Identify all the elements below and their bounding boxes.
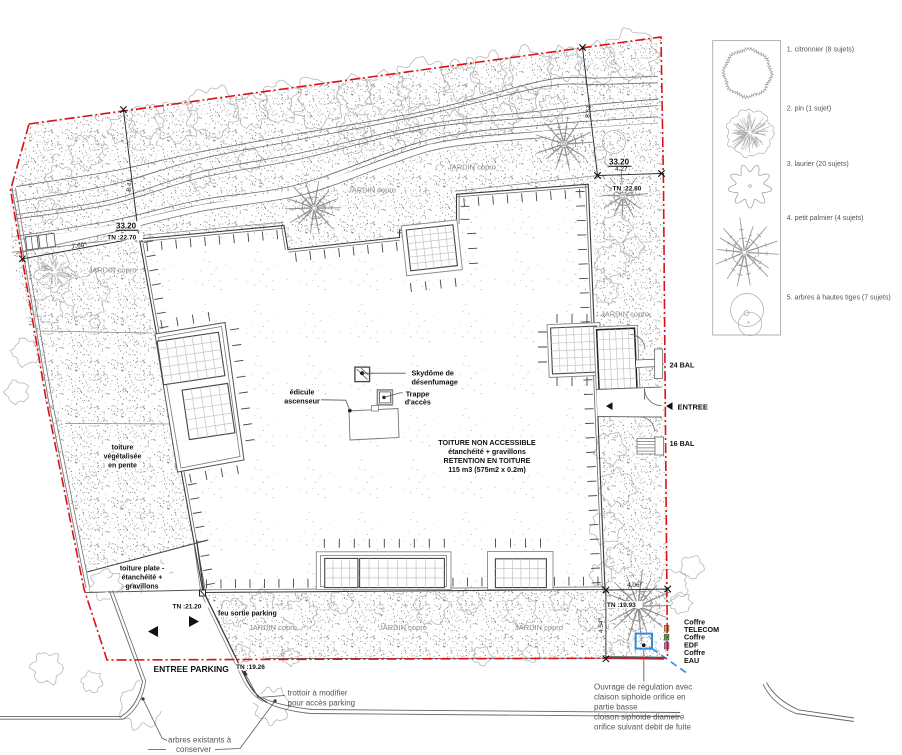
svg-text:JARDIN copro: JARDIN copro bbox=[601, 310, 649, 319]
svg-text:1. citronnier (8 sujets): 1. citronnier (8 sujets) bbox=[787, 47, 854, 54]
svg-text:désenfumage: désenfumage bbox=[412, 377, 458, 386]
svg-text:JARDIN copro: JARDIN copro bbox=[249, 623, 297, 632]
svg-text:en pente: en pente bbox=[108, 463, 137, 470]
svg-text:ENTREE PARKING: ENTREE PARKING bbox=[154, 664, 230, 674]
svg-text:TN :19.26: TN :19.26 bbox=[236, 664, 265, 671]
svg-text:RETENTION EN TOITURE: RETENTION EN TOITURE bbox=[444, 456, 531, 465]
svg-text:4. petit palmier (4 sujets): 4. petit palmier (4 sujets) bbox=[787, 215, 864, 222]
svg-text:Ouvrage de régulation avec: Ouvrage de régulation avec bbox=[594, 683, 692, 692]
svg-text:24 BAL: 24 BAL bbox=[670, 360, 695, 369]
svg-text:ENTREE: ENTREE bbox=[678, 402, 708, 411]
svg-text:EAU: EAU bbox=[684, 656, 699, 665]
svg-text:étanchéité + gravillons: étanchéité + gravillons bbox=[448, 447, 526, 456]
svg-text:16 BAL: 16 BAL bbox=[670, 439, 695, 448]
svg-text:toiture: toiture bbox=[112, 445, 134, 452]
svg-text:JARDIN copro: JARDIN copro bbox=[448, 163, 496, 172]
svg-text:5. arbres à hautes tiges (7 su: 5. arbres à hautes tiges (7 sujets) bbox=[787, 295, 891, 302]
svg-text:4.54°: 4.54° bbox=[597, 617, 605, 633]
svg-text:TN :22.80: TN :22.80 bbox=[613, 185, 642, 192]
svg-text:2. pin (1 sujet): 2. pin (1 sujet) bbox=[787, 106, 831, 113]
svg-text:33.20: 33.20 bbox=[609, 157, 630, 166]
svg-text:TN :21.20: TN :21.20 bbox=[173, 603, 202, 610]
svg-text:ascenseur: ascenseur bbox=[284, 397, 320, 406]
svg-text:JARDIN copro: JARDIN copro bbox=[348, 186, 396, 195]
svg-text:trottoir à modifier: trottoir à modifier bbox=[288, 689, 348, 698]
svg-text:conserver: conserver bbox=[176, 745, 211, 754]
svg-text:TN :19.93: TN :19.93 bbox=[607, 602, 636, 609]
svg-text:pour accès parking: pour accès parking bbox=[288, 699, 356, 708]
svg-text:JARDIN copro: JARDIN copro bbox=[515, 623, 563, 632]
svg-text:partie basse: partie basse bbox=[594, 703, 638, 712]
svg-text:TN :22.70: TN :22.70 bbox=[107, 234, 136, 241]
svg-text:JARDIN copro: JARDIN copro bbox=[89, 266, 137, 275]
svg-text:33.20: 33.20 bbox=[116, 221, 137, 230]
svg-text:étanchéité +: étanchéité + bbox=[122, 575, 163, 582]
svg-text:feu sortie parking: feu sortie parking bbox=[218, 611, 277, 618]
svg-text:4.27: 4.27 bbox=[615, 166, 628, 173]
svg-text:4.06°: 4.06° bbox=[627, 581, 643, 589]
svg-text:JARDIN copro: JARDIN copro bbox=[379, 623, 427, 632]
svg-text:édicule: édicule bbox=[290, 388, 315, 397]
svg-text:toiture plate -: toiture plate - bbox=[120, 566, 165, 573]
svg-text:8.51: 8.51 bbox=[585, 105, 593, 119]
svg-text:d'accès: d'accès bbox=[405, 398, 431, 407]
svg-text:3. laurier (20 sujets): 3. laurier (20 sujets) bbox=[787, 161, 849, 168]
svg-text:arbres existants à: arbres existants à bbox=[168, 736, 232, 745]
svg-text:claison siphoide orifice en: claison siphoide orifice en bbox=[594, 693, 686, 702]
svg-text:gravillons: gravillons bbox=[125, 584, 158, 591]
svg-text:cloison siphoide diametre: cloison siphoide diametre bbox=[594, 713, 685, 722]
svg-text:végétalisée: végétalisée bbox=[104, 454, 142, 461]
svg-text:TOITURE NON ACCESSIBLE: TOITURE NON ACCESSIBLE bbox=[438, 438, 536, 447]
svg-text:orifice suivant debit de fuite: orifice suivant debit de fuite bbox=[594, 723, 691, 732]
svg-text:Skydôme de: Skydôme de bbox=[412, 369, 454, 378]
svg-text:115 m3 (575m2 x 0.2m): 115 m3 (575m2 x 0.2m) bbox=[448, 465, 526, 474]
